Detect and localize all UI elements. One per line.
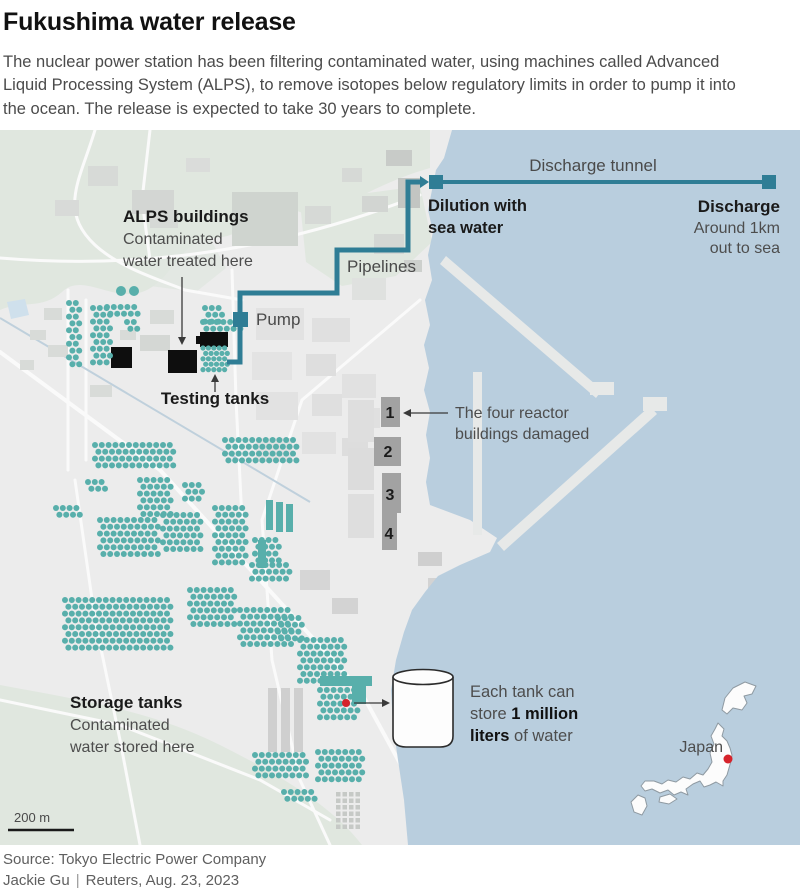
intro-paragraph: The nuclear power station has been filte… — [3, 51, 790, 121]
building — [312, 318, 350, 342]
reactors-label-line2: buildings damaged — [455, 426, 589, 443]
building — [386, 150, 412, 166]
japan-label: Japan — [679, 739, 723, 756]
building — [268, 688, 277, 752]
intro-line-1: The nuclear power station has been filte… — [3, 53, 719, 71]
tank-marker-red-dot — [342, 699, 350, 707]
building — [342, 374, 376, 398]
intro-line-2: Liquid Processing System (ALPS), to remo… — [3, 76, 736, 94]
dilution-node — [429, 175, 443, 189]
reactor-1-number: 1 — [386, 405, 395, 422]
building — [281, 688, 290, 752]
page-title: Fukushima water release — [3, 8, 790, 37]
building — [186, 158, 210, 172]
reactor-3-number: 3 — [386, 487, 395, 504]
building — [252, 352, 292, 380]
building — [20, 360, 34, 370]
building — [302, 432, 336, 454]
storage-label-title: Storage tanks — [70, 693, 182, 712]
pump-square — [233, 312, 248, 327]
fukushima-location-dot — [724, 755, 733, 764]
map-container: 1 2 3 4 — [0, 130, 800, 845]
separator: | — [70, 872, 86, 889]
building — [150, 310, 174, 324]
pump-label: Pump — [256, 310, 300, 329]
site-map: 1 2 3 4 — [0, 130, 800, 845]
building — [140, 335, 170, 351]
alps-label-line2: water treated here — [122, 253, 253, 270]
building — [348, 448, 374, 490]
header: Fukushima water release The nuclear powe… — [0, 0, 800, 121]
dilution-label-line2: sea water — [428, 219, 504, 237]
infographic-page: Fukushima water release The nuclear powe… — [0, 0, 800, 890]
building — [362, 196, 388, 212]
building — [48, 345, 68, 357]
tank-cylinder-illustration — [393, 670, 453, 748]
building — [88, 166, 118, 186]
reactors-label-line1: The four reactor — [455, 405, 570, 422]
building — [30, 330, 46, 340]
building — [55, 200, 79, 216]
building — [120, 330, 136, 340]
building — [348, 494, 374, 538]
reactor-4-number: 4 — [385, 526, 394, 543]
discharge-label-line1: Around 1km — [694, 220, 780, 237]
building — [312, 394, 342, 416]
testing-tanks-label: Testing tanks — [161, 389, 269, 408]
tank-note-line3: liters of water — [470, 727, 573, 745]
building — [306, 354, 336, 376]
building — [300, 570, 330, 590]
credit-line: Jackie Gu|Reuters, Aug. 23, 2023 — [0, 872, 800, 889]
building — [332, 598, 358, 614]
building — [352, 278, 386, 300]
alps-label-line1: Contaminated — [123, 231, 223, 248]
discharge-label-line2: out to sea — [710, 240, 780, 257]
footer: Source: Tokyo Electric Power Company Jac… — [0, 845, 800, 890]
discharge-node — [762, 175, 776, 189]
building — [342, 168, 362, 182]
intro-line-3: the ocean. The release is expected to ta… — [3, 100, 476, 118]
storage-label-line2: water stored here — [69, 739, 195, 756]
building — [90, 385, 112, 397]
dilution-label-line1: Dilution with — [428, 197, 527, 215]
byline: Jackie Gu — [3, 872, 70, 889]
credit-text: Reuters, Aug. 23, 2023 — [86, 872, 239, 889]
building — [348, 400, 374, 442]
alps-label-title: ALPS buildings — [123, 207, 249, 226]
source-line: Source: Tokyo Electric Power Company — [0, 851, 800, 868]
pipelines-label: Pipelines — [347, 257, 416, 276]
building — [418, 552, 442, 566]
building — [44, 308, 62, 320]
reactor-2-number: 2 — [384, 444, 393, 461]
discharge-label-title: Discharge — [698, 197, 780, 216]
storage-label-line1: Contaminated — [70, 717, 170, 734]
building — [305, 206, 331, 224]
discharge-tunnel-label: Discharge tunnel — [529, 156, 657, 175]
building — [294, 688, 303, 752]
tank-note-line2: store 1 million — [470, 705, 578, 723]
tank-note-line1: Each tank can — [470, 683, 575, 701]
scale-label: 200 m — [14, 810, 50, 825]
